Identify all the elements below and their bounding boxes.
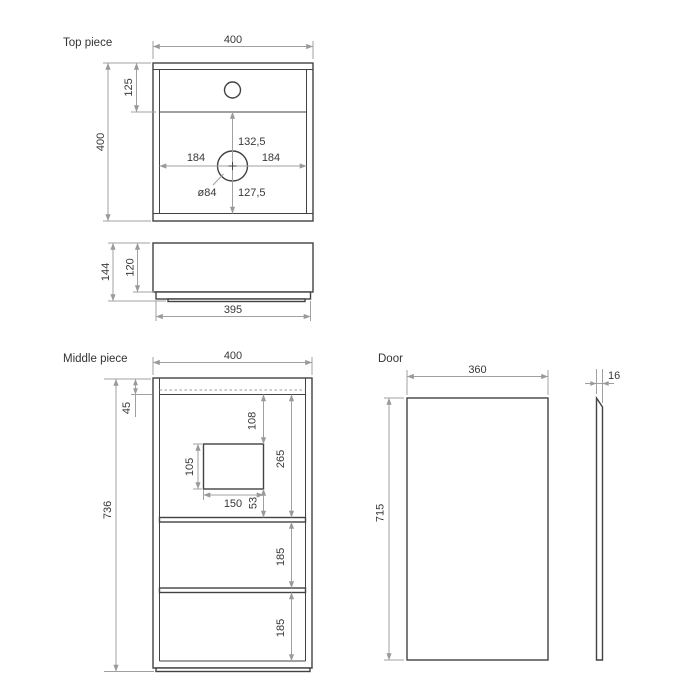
dim-door-thickness-label: 16: [608, 370, 620, 382]
dim-opening-from-top-label: 108: [247, 412, 259, 430]
dim-center-to-divider: 132,5: [238, 136, 266, 148]
side-body-outline: [153, 243, 313, 292]
door-front-panel: [407, 398, 548, 660]
drawing-canvas: Top piece 132,5 184 184 127,5 ø84: [0, 0, 700, 700]
dim-top-section-label: 265: [275, 450, 287, 468]
dim-opening-height-label: 105: [184, 458, 196, 476]
dim-height-label: 400: [95, 133, 107, 151]
dim-center-to-right: 184: [262, 152, 280, 164]
shelf-1: [160, 518, 306, 523]
dim-opening-width-label: 150: [224, 498, 242, 510]
top-piece-title: Top piece: [63, 37, 112, 49]
dim-door-width-label: 360: [468, 364, 486, 376]
middle-piece-outline: [153, 378, 312, 668]
dim-door-height-label: 715: [375, 504, 387, 522]
dim-base-width-label: 395: [224, 304, 242, 316]
dim-total-height-label: 144: [100, 263, 112, 281]
side-base-strip: [168, 299, 305, 302]
dim-width-label: 400: [224, 350, 242, 362]
dim-total-height-label: 736: [102, 501, 114, 519]
dim-top-rail-label: 45: [121, 402, 133, 414]
dim-drain-diameter: ø84: [198, 187, 217, 199]
dim-center-to-front: 127,5: [238, 187, 266, 199]
middle-piece-title: Middle piece: [63, 353, 128, 365]
dim-body-height-label: 120: [125, 258, 137, 276]
page-background: [0, 0, 700, 700]
shelf-2: [160, 588, 306, 593]
back-panel-cutout: [204, 444, 264, 489]
top-piece-plan: 132,5 184 184 127,5 ø84: [153, 63, 313, 221]
faucet-hole-circle: [225, 82, 241, 98]
door-title: Door: [378, 353, 403, 365]
technical-drawing-page: Top piece 132,5 184 184 127,5 ø84: [0, 0, 700, 700]
dim-hole-offset-label: 125: [123, 78, 135, 96]
side-step-outline: [156, 292, 311, 299]
dim-center-to-left: 184: [187, 152, 205, 164]
dim-opening-to-shelf-label: 53: [248, 497, 260, 509]
dim-width-label: 400: [224, 34, 242, 46]
dim-bottom-section-label: 185: [275, 619, 287, 637]
dim-middle-section-label: 185: [275, 548, 287, 566]
base-strip: [156, 668, 310, 672]
middle-piece-body: [153, 378, 312, 672]
